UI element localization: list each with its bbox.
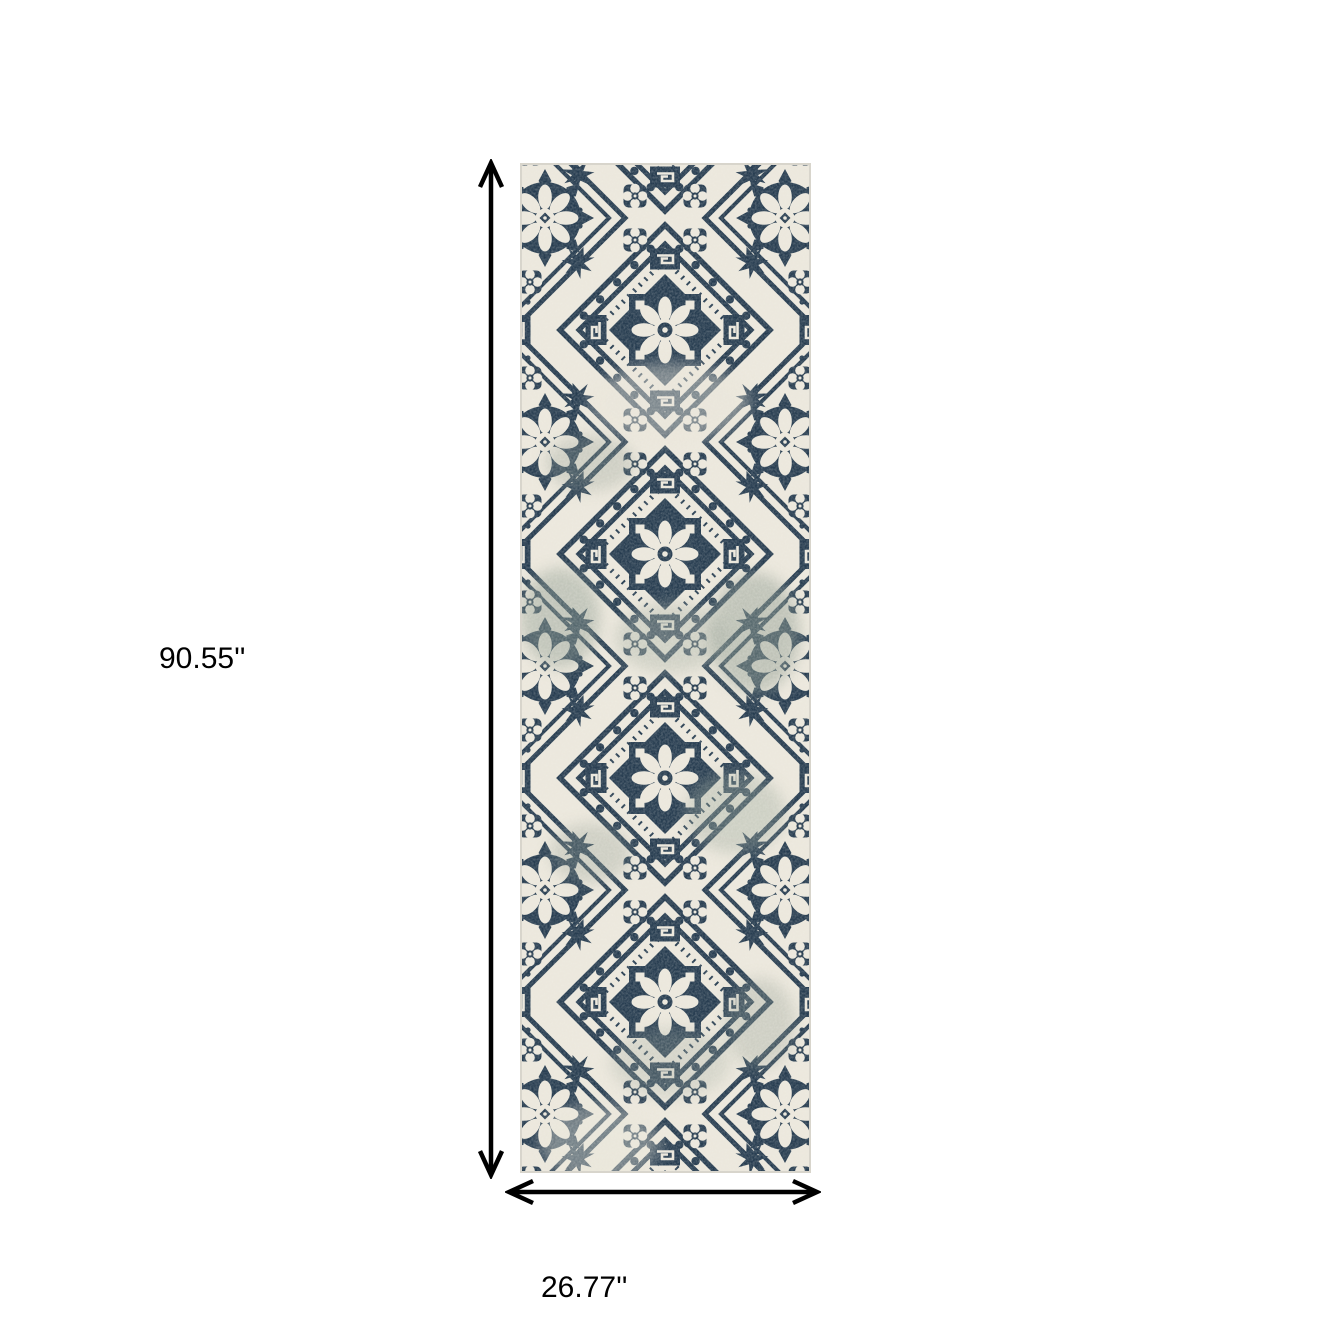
- height-dimension-arrow-icon: [477, 159, 505, 1179]
- height-dimension-label: 90.55'': [159, 644, 246, 674]
- width-dimension-label: 26.77'': [541, 1273, 628, 1303]
- rug-pattern-graphic: [520, 163, 811, 1173]
- rug-image: [520, 163, 811, 1173]
- product-dimension-diagram: 90.55'' 26.77'': [0, 0, 1331, 1331]
- width-dimension-arrow-icon: [505, 1178, 821, 1206]
